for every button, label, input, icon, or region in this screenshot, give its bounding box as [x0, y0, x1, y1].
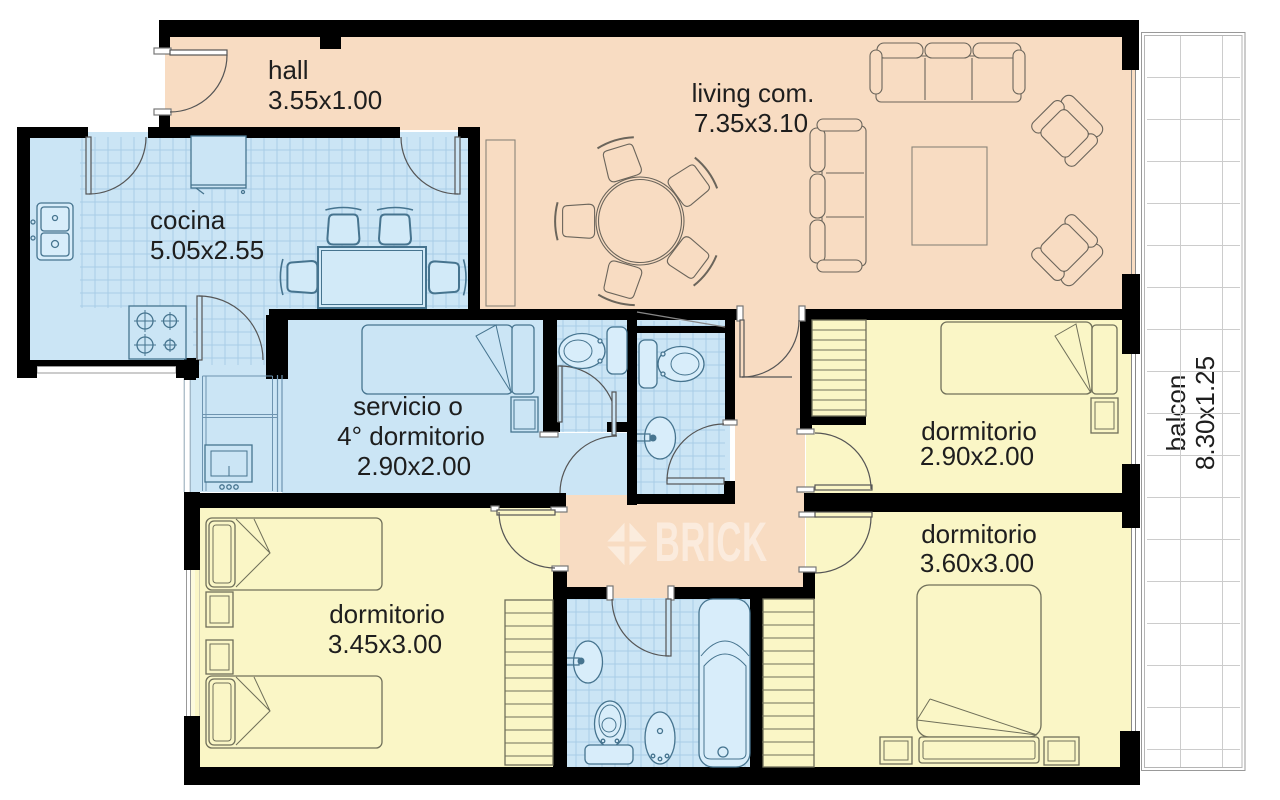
svg-text:4° dormitorio: 4° dormitorio	[337, 421, 485, 451]
svg-text:cocina: cocina	[150, 205, 226, 235]
svg-text:7.35x3.10: 7.35x3.10	[694, 108, 808, 138]
svg-text:servicio o: servicio o	[353, 391, 463, 421]
svg-text:dormitorio: dormitorio	[921, 519, 1037, 549]
svg-text:3.55x1.00: 3.55x1.00	[268, 85, 382, 115]
svg-text:dormitorio: dormitorio	[329, 599, 445, 629]
svg-text:2.90x2.00: 2.90x2.00	[357, 451, 471, 481]
svg-text:living com.: living com.	[692, 78, 815, 108]
svg-text:5.05x2.55: 5.05x2.55	[150, 235, 264, 265]
svg-text:2.90x2.00: 2.90x2.00	[920, 441, 1034, 471]
svg-text:hall: hall	[268, 55, 308, 85]
svg-text:3.45x3.00: 3.45x3.00	[328, 629, 442, 659]
svg-text:BRICK: BRICK	[655, 511, 768, 574]
svg-text:3.60x3.00: 3.60x3.00	[920, 548, 1034, 578]
